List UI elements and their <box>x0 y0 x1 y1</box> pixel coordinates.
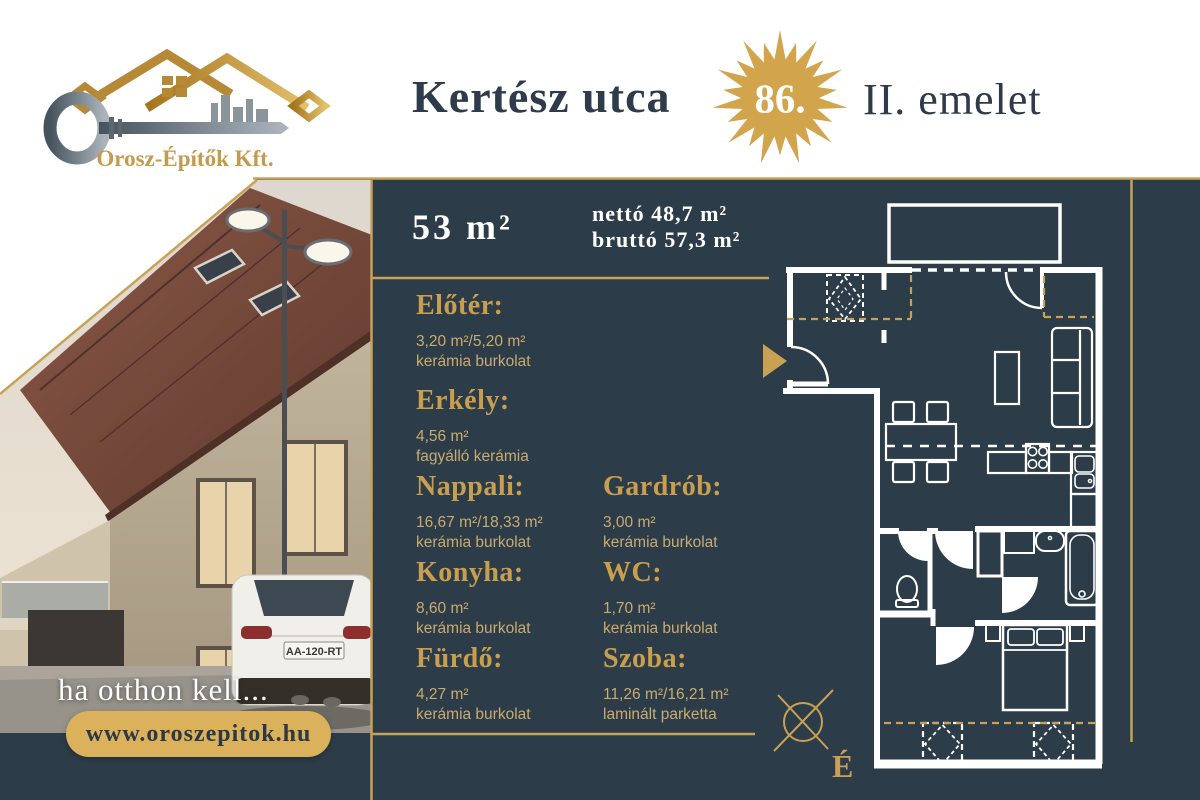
pillow <box>1008 629 1034 645</box>
gross-area: bruttó 57,3 m² <box>592 227 740 253</box>
room-entry-konyha: Konyha: 8,60 m² kerámia burkolat <box>416 557 601 639</box>
wc-door <box>898 531 928 561</box>
website-button[interactable]: www.oroszepitok.hu <box>66 711 331 757</box>
room-area: 8,60 m² <box>416 599 601 619</box>
license-plate: AA-120-RT <box>286 646 343 658</box>
sofa <box>1052 328 1092 427</box>
bed <box>986 625 1084 710</box>
house-number-starburst: 86. <box>707 25 853 171</box>
room-finish: kerámia burkolat <box>416 352 601 372</box>
room-finish: kerámia burkolat <box>416 619 601 639</box>
chair <box>893 402 914 422</box>
dining-table <box>886 424 956 460</box>
house-number: 86. <box>754 77 805 122</box>
flyer-canvas: AA-120-RT <box>0 0 1200 800</box>
net-gross-areas: nettó 48,7 m² bruttó 57,3 m² <box>592 201 740 253</box>
bathroom-door <box>1002 577 1038 613</box>
company-logo: Orosz-Építők Kft. <box>25 14 335 172</box>
hall-door <box>935 531 973 569</box>
pillow <box>1037 629 1063 645</box>
room-area: 3,20 m²/5,20 m² <box>416 332 601 352</box>
room-entry-erkely: Erkély: 4,56 m² fagyálló kerámia <box>416 385 601 467</box>
shaft <box>978 531 1002 576</box>
kitchen-lower-cabinet <box>1071 494 1098 527</box>
room-area: 4,56 m² <box>416 427 601 447</box>
bath-sink <box>1036 531 1064 551</box>
compass-icon <box>774 690 833 751</box>
toilet <box>896 576 918 607</box>
company-name: Orosz-Építők Kft. <box>96 146 273 171</box>
tagline: ha otthon kell... <box>58 672 269 708</box>
kitchen-counter <box>1049 452 1072 473</box>
room-area: 16,67 m²/18,33 m² <box>416 513 601 533</box>
room-name: Fürdő: <box>416 643 601 675</box>
room-finish: kerámia burkolat <box>416 533 601 553</box>
room-area: 4,27 m² <box>416 685 601 705</box>
floorplan: É <box>758 190 1142 800</box>
room-name: Erkély: <box>416 385 601 417</box>
room-entry-nappali: Nappali: 16,67 m²/18,33 m² kerámia burko… <box>416 471 601 553</box>
bedroom-door <box>936 627 974 665</box>
balcony-door <box>1006 272 1042 308</box>
bath-cabinet <box>1004 531 1034 553</box>
balcony-outline <box>889 205 1060 262</box>
kitchen <box>988 444 1098 527</box>
chair <box>927 402 948 422</box>
room-name: Nappali: <box>416 471 601 503</box>
compass-north-label: É <box>832 748 853 784</box>
nightstand <box>986 625 1000 641</box>
room-finish: fagyálló kerámia <box>416 447 601 467</box>
floor-title: II. emelet <box>863 74 1042 125</box>
coffee-table <box>995 352 1019 404</box>
entrance-arrow-icon <box>763 344 787 378</box>
key-skyline-teeth <box>211 95 268 122</box>
room-entry-eloter: Előtér: 3,20 m²/5,20 m² kerámia burkolat <box>416 290 601 372</box>
window-symbols <box>827 270 1096 766</box>
total-area: 53 m² <box>412 206 513 248</box>
room-finish: kerámia burkolat <box>416 705 601 725</box>
kitchen-cabinet <box>988 452 1026 473</box>
room-name: Konyha: <box>416 557 601 589</box>
room-name: Előtér: <box>416 290 601 322</box>
chair <box>893 462 914 482</box>
walls <box>783 267 1102 764</box>
dining-set <box>886 402 956 482</box>
nightstand <box>1070 625 1084 641</box>
furniture <box>886 328 1098 710</box>
chair <box>927 462 948 482</box>
street-title: Kertész utca <box>412 70 671 123</box>
entry-door <box>791 347 828 384</box>
net-area: nettó 48,7 m² <box>592 201 740 227</box>
entry-closet <box>827 275 863 321</box>
room-entry-furdo: Fürdő: 4,27 m² kerámia burkolat <box>416 643 601 725</box>
